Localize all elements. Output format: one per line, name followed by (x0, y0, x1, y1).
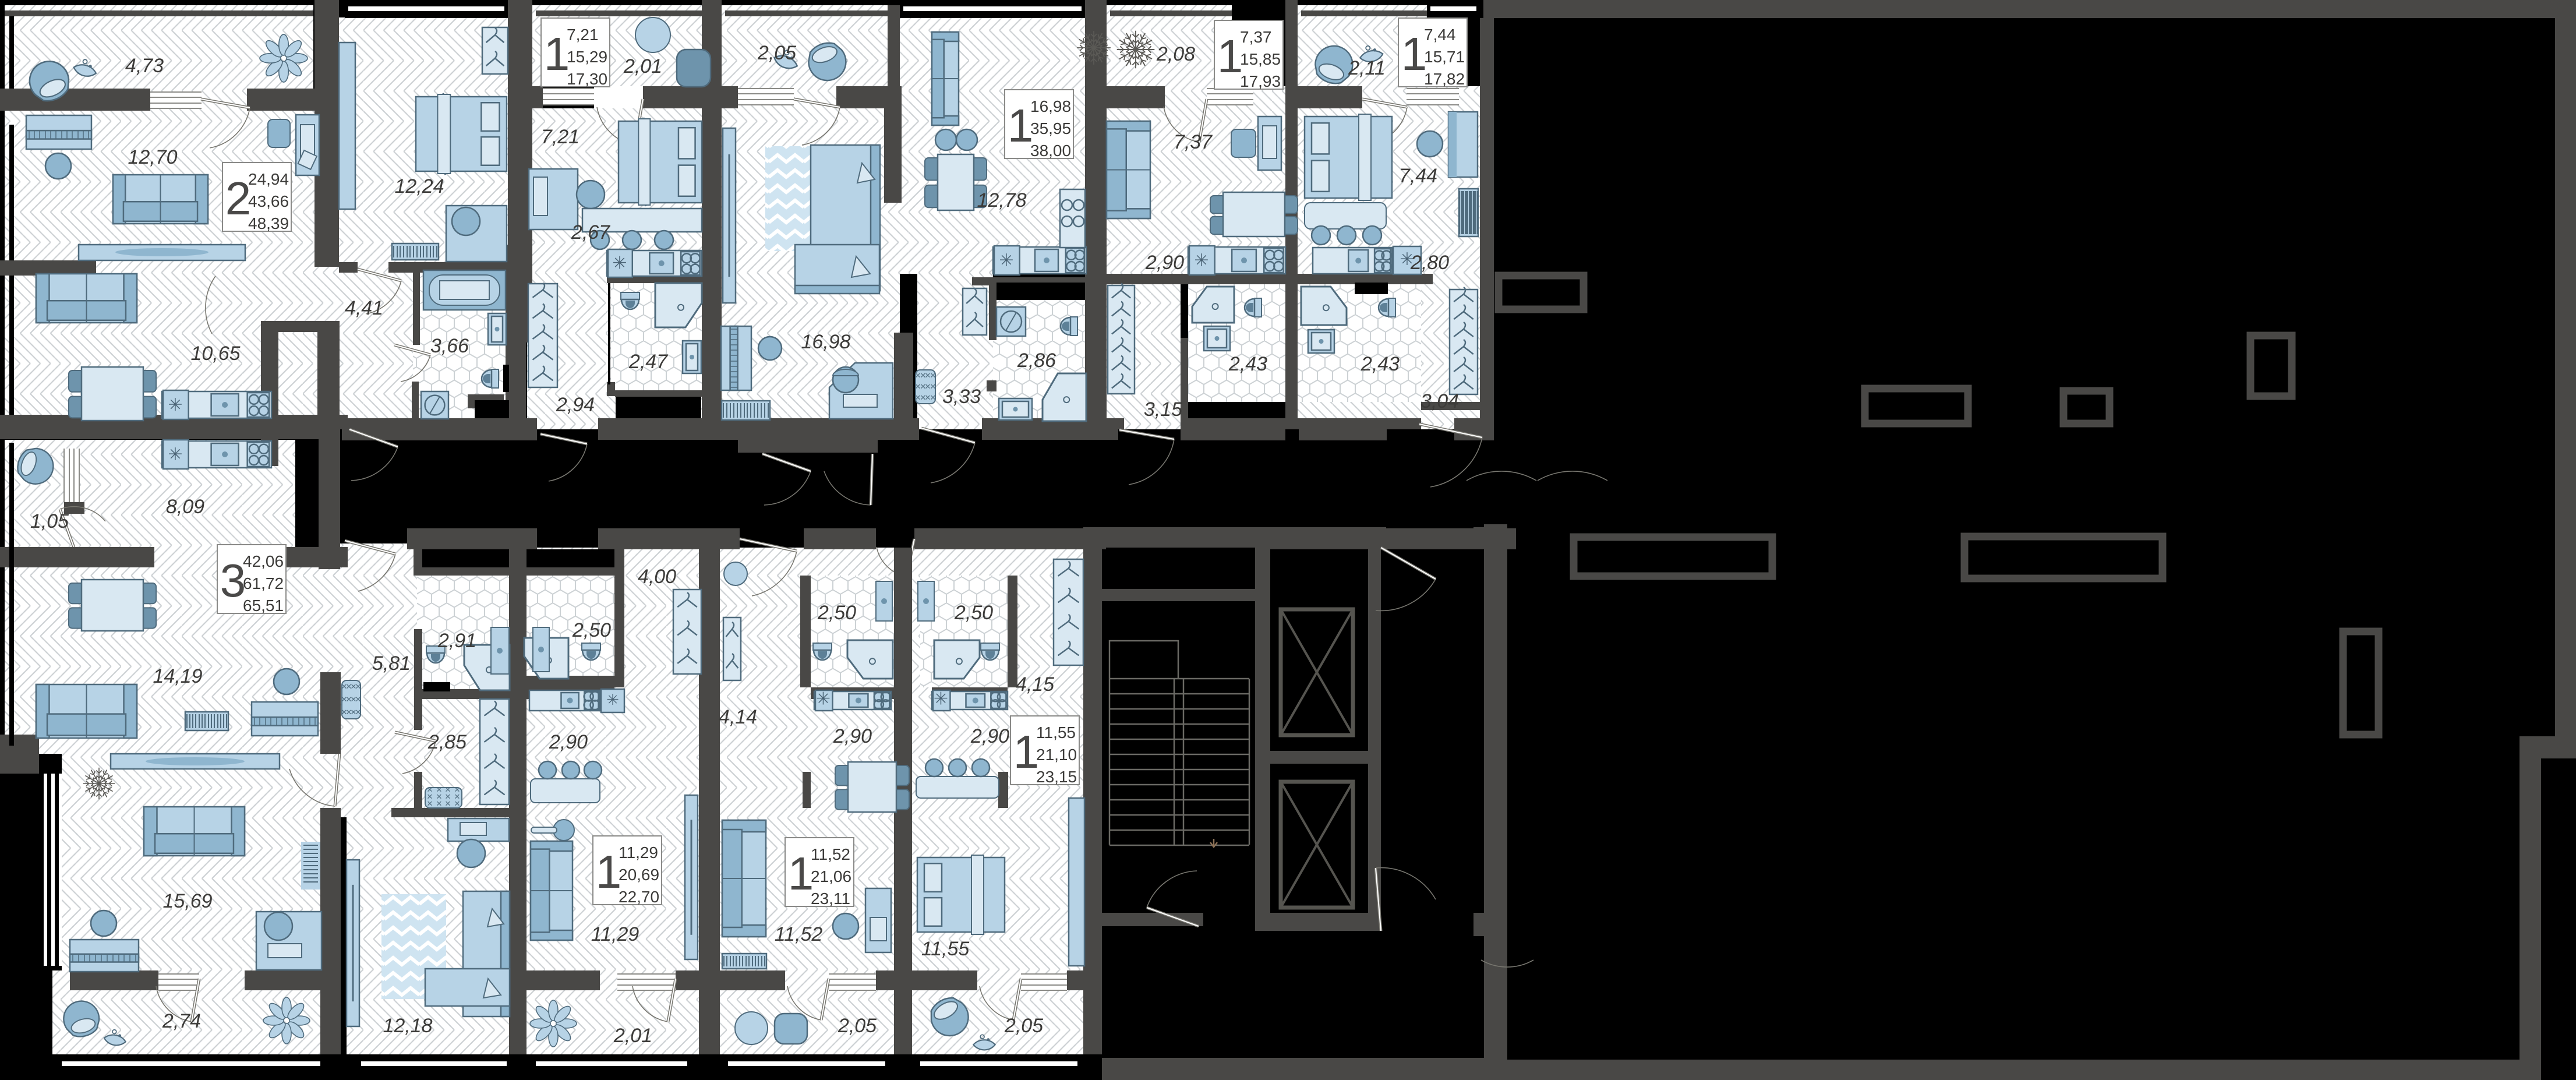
svg-text:23,11: 23,11 (811, 890, 850, 908)
svg-text:5,81: 5,81 (372, 652, 411, 675)
svg-text:15,69: 15,69 (162, 890, 212, 912)
svg-text:2,91: 2,91 (437, 630, 476, 652)
svg-text:17,30: 17,30 (567, 70, 607, 88)
svg-text:61,72: 61,72 (243, 574, 284, 592)
svg-text:15,29: 15,29 (567, 48, 607, 66)
svg-text:2,50: 2,50 (572, 619, 611, 641)
svg-text:✳: ✳ (612, 254, 627, 273)
svg-text:14,19: 14,19 (153, 665, 202, 687)
svg-text:38,00: 38,00 (1030, 142, 1071, 160)
svg-text:2,74: 2,74 (162, 1010, 201, 1032)
svg-text:1: 1 (1008, 100, 1034, 151)
svg-text:11,29: 11,29 (591, 923, 639, 945)
svg-text:✳: ✳ (999, 251, 1013, 270)
svg-text:✕: ✕ (445, 799, 451, 808)
svg-text:2,50: 2,50 (954, 602, 993, 624)
svg-text:11,52: 11,52 (775, 923, 823, 945)
svg-text:48,39: 48,39 (248, 214, 289, 232)
svg-text:2,43: 2,43 (1228, 353, 1267, 375)
svg-text:✕: ✕ (930, 393, 937, 402)
svg-text:7,21: 7,21 (567, 26, 599, 44)
svg-text:7,44: 7,44 (1399, 165, 1437, 187)
svg-text:65,51: 65,51 (243, 597, 284, 615)
svg-text:✳: ✳ (168, 396, 182, 415)
svg-text:7,21: 7,21 (541, 126, 579, 148)
svg-text:4,41: 4,41 (345, 297, 383, 319)
svg-text:4,15: 4,15 (1016, 673, 1054, 696)
svg-text:1: 1 (1013, 726, 1040, 778)
svg-text:21,06: 21,06 (811, 867, 851, 885)
svg-text:15,71: 15,71 (1424, 48, 1465, 66)
svg-text:✕: ✕ (930, 382, 937, 391)
svg-text:7,37: 7,37 (1174, 131, 1213, 153)
svg-text:24,94: 24,94 (248, 170, 289, 188)
svg-text:✕: ✕ (930, 371, 937, 380)
svg-text:✳: ✳ (816, 689, 831, 708)
svg-text:3,66: 3,66 (430, 335, 469, 357)
svg-text:23,15: 23,15 (1036, 768, 1077, 786)
svg-text:12,70: 12,70 (128, 146, 177, 168)
svg-text:1: 1 (1217, 30, 1243, 82)
svg-text:✕: ✕ (454, 799, 461, 808)
svg-text:1: 1 (1401, 28, 1427, 80)
svg-text:11,52: 11,52 (811, 845, 850, 863)
svg-text:2,85: 2,85 (427, 731, 467, 753)
svg-text:4,14: 4,14 (719, 706, 757, 728)
svg-text:35,95: 35,95 (1030, 119, 1071, 137)
svg-text:2,90: 2,90 (549, 731, 588, 753)
svg-text:✕: ✕ (355, 695, 362, 704)
svg-text:2,05: 2,05 (757, 42, 796, 64)
svg-text:11,29: 11,29 (619, 843, 658, 862)
svg-text:✳: ✳ (168, 445, 182, 464)
svg-text:1: 1 (544, 28, 570, 80)
svg-text:2,90: 2,90 (1145, 252, 1184, 274)
svg-text:1: 1 (596, 846, 622, 898)
svg-text:3,15: 3,15 (1144, 398, 1182, 421)
svg-text:7,44: 7,44 (1424, 26, 1456, 44)
svg-text:12,78: 12,78 (977, 189, 1026, 211)
svg-text:2,50: 2,50 (817, 602, 856, 624)
svg-text:4,73: 4,73 (125, 55, 164, 77)
svg-text:2,90: 2,90 (970, 725, 1009, 747)
svg-text:10,65: 10,65 (190, 343, 240, 365)
svg-text:1,05: 1,05 (30, 510, 69, 532)
svg-text:17,82: 17,82 (1424, 70, 1465, 88)
svg-text:15,85: 15,85 (1240, 50, 1281, 68)
svg-text:2,47: 2,47 (628, 351, 668, 373)
svg-text:3,33: 3,33 (942, 386, 981, 408)
svg-text:✕: ✕ (427, 799, 433, 808)
svg-text:✕: ✕ (436, 799, 443, 808)
svg-text:42,06: 42,06 (243, 552, 284, 570)
svg-text:2: 2 (225, 172, 252, 224)
svg-text:✳: ✳ (1194, 251, 1209, 270)
svg-text:2,05: 2,05 (838, 1015, 877, 1037)
svg-text:11,55: 11,55 (921, 938, 970, 960)
svg-text:11,55: 11,55 (1036, 723, 1076, 742)
svg-text:2,43: 2,43 (1361, 353, 1400, 375)
svg-text:2,80: 2,80 (1410, 252, 1449, 274)
svg-text:4,00: 4,00 (638, 566, 676, 588)
svg-text:2,94: 2,94 (556, 394, 595, 416)
svg-text:2,90: 2,90 (833, 725, 872, 747)
svg-text:2,01: 2,01 (623, 55, 662, 77)
svg-text:16,98: 16,98 (1030, 97, 1071, 115)
svg-text:3: 3 (220, 555, 246, 606)
svg-text:3,04: 3,04 (1420, 390, 1459, 412)
svg-text:2,05: 2,05 (1004, 1015, 1043, 1037)
svg-text:16,98: 16,98 (801, 331, 850, 353)
svg-text:2,11: 2,11 (1348, 57, 1386, 79)
svg-text:✳: ✳ (606, 691, 619, 708)
svg-text:2,67: 2,67 (571, 221, 610, 243)
svg-text:21,10: 21,10 (1036, 746, 1077, 764)
svg-text:✳: ✳ (934, 689, 948, 708)
svg-text:20,69: 20,69 (619, 866, 659, 884)
svg-text:1: 1 (788, 848, 814, 899)
svg-text:43,66: 43,66 (248, 192, 289, 210)
svg-text:2,01: 2,01 (613, 1025, 652, 1047)
svg-text:8,09: 8,09 (166, 496, 204, 518)
svg-text:12,24: 12,24 (394, 175, 444, 197)
svg-text:✕: ✕ (355, 682, 362, 691)
svg-text:7,37: 7,37 (1240, 28, 1272, 46)
svg-text:2,08: 2,08 (1156, 43, 1195, 65)
svg-text:✕: ✕ (355, 708, 362, 717)
svg-text:12,18: 12,18 (383, 1015, 432, 1037)
svg-text:17,93: 17,93 (1240, 72, 1281, 90)
svg-text:2,86: 2,86 (1017, 350, 1056, 372)
svg-text:22,70: 22,70 (619, 888, 659, 906)
